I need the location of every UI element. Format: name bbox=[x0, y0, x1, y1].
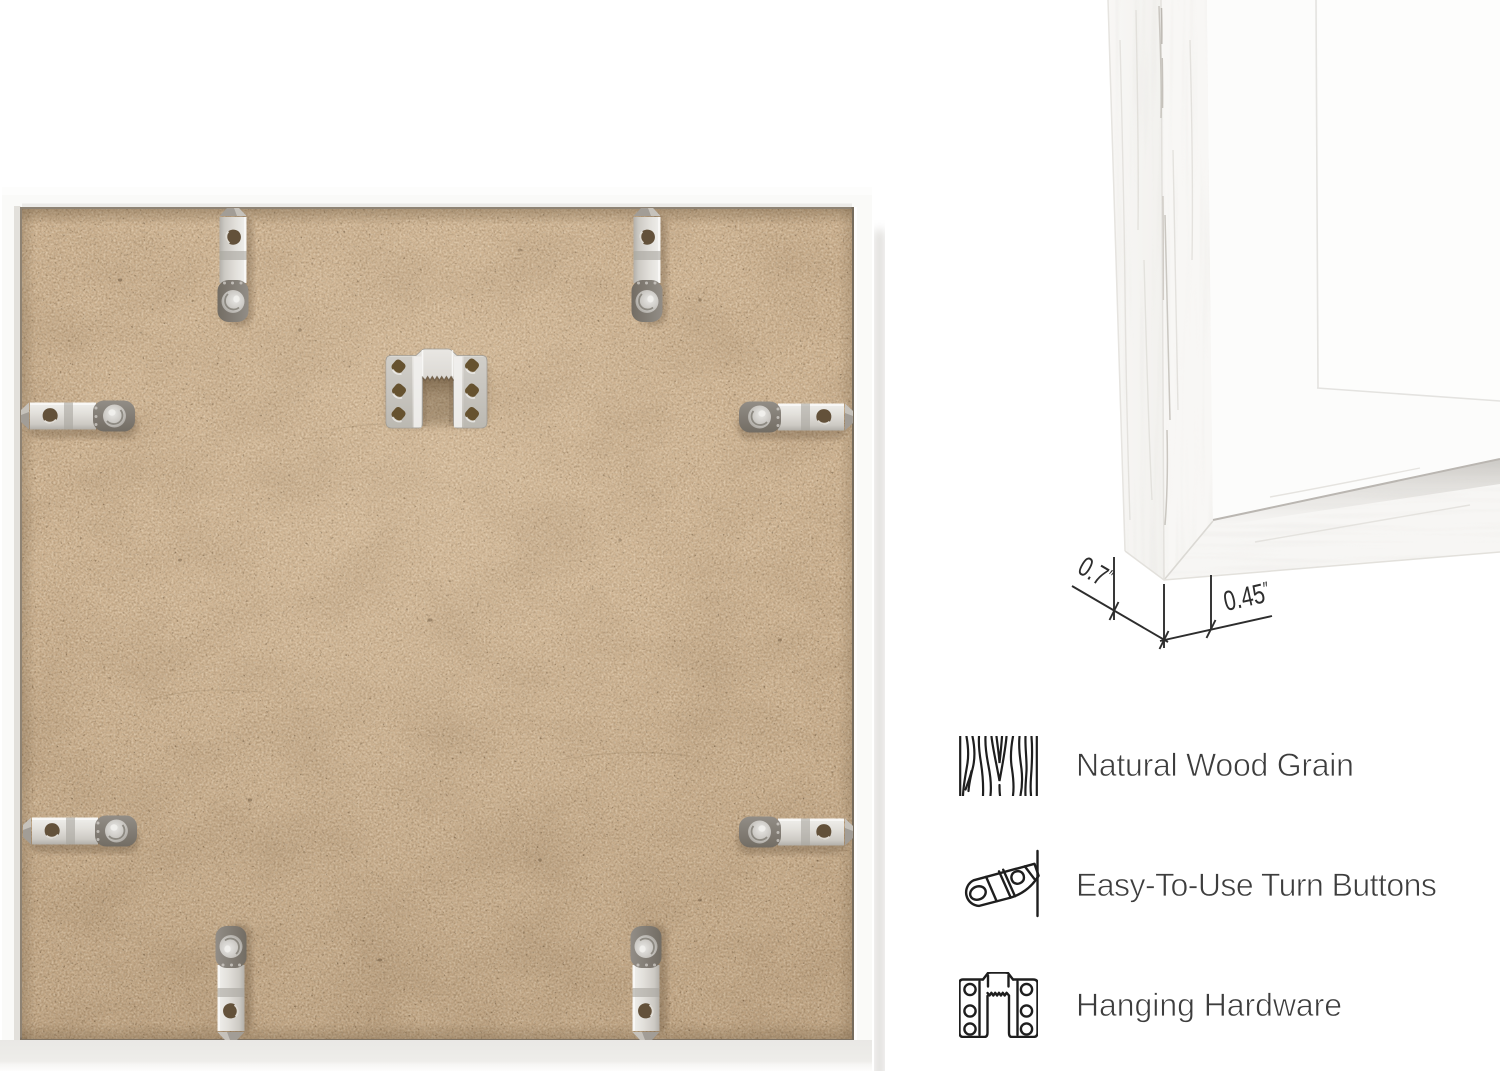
svg-text:0.45″: 0.45″ bbox=[1221, 577, 1273, 618]
svg-text:0.7″: 0.7″ bbox=[1073, 551, 1118, 595]
